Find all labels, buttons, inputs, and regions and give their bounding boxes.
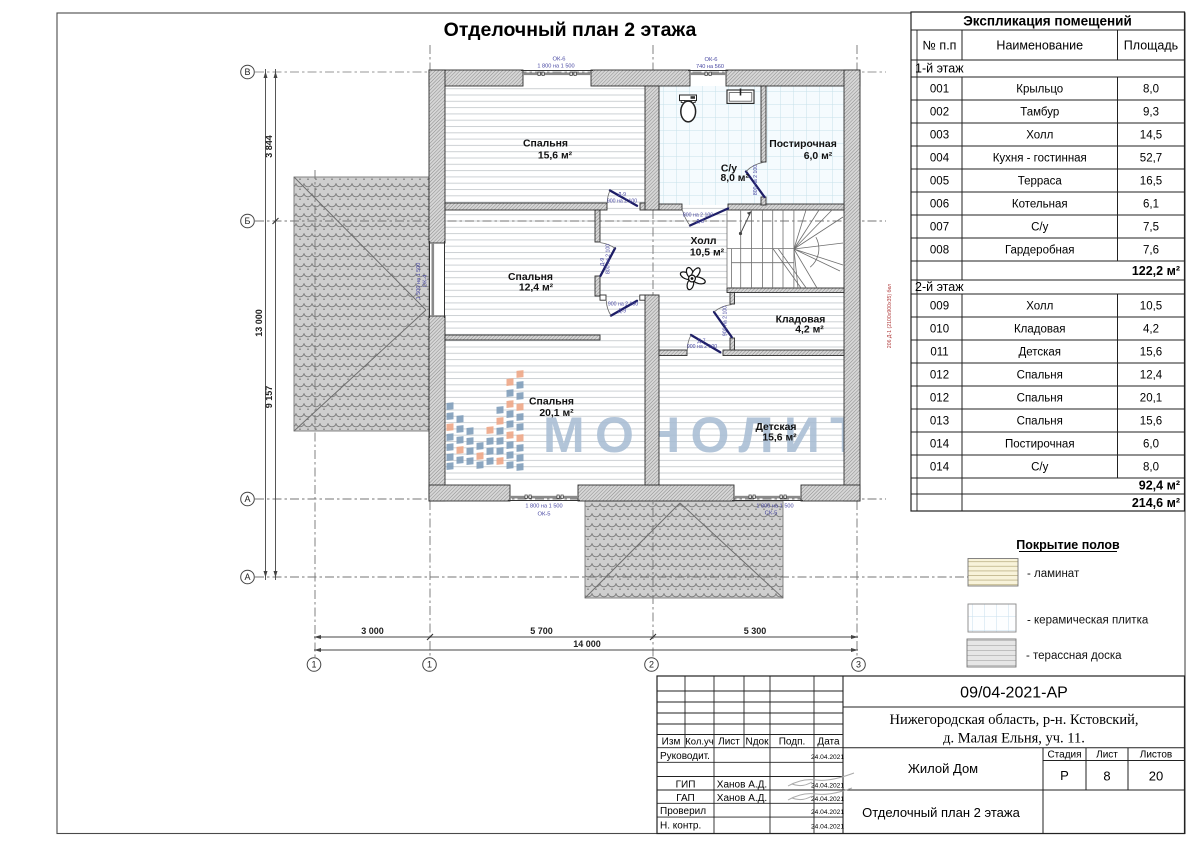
svg-text:А: А (244, 494, 250, 504)
svg-text:122,2 м²: 122,2 м² (1132, 264, 1180, 278)
svg-text:Спальня: Спальня (1017, 393, 1063, 405)
svg-text:24.04.2021: 24.04.2021 (811, 824, 844, 831)
svg-text:09/04-2021-АР: 09/04-2021-АР (960, 685, 1068, 702)
svg-text:Площадь: Площадь (1124, 39, 1178, 53)
svg-text:5 700: 5 700 (530, 626, 553, 636)
svg-text:900 на 2 100: 900 на 2 100 (607, 199, 637, 205)
svg-text:Кухня - гостинная: Кухня - гостинная (993, 153, 1087, 165)
svg-text:Подп.: Подп. (779, 736, 806, 747)
svg-text:14,5: 14,5 (1140, 130, 1162, 142)
svg-text:Кол.уч: Кол.уч (685, 736, 714, 747)
svg-text:3: 3 (856, 660, 861, 670)
svg-text:1 500 на 1 500: 1 500 на 1 500 (416, 263, 422, 300)
svg-text:010: 010 (930, 324, 949, 336)
svg-text:900 на 2 100: 900 на 2 100 (608, 302, 638, 308)
svg-text:ОК-4: ОК-4 (423, 275, 429, 287)
svg-text:ГАП: ГАП (676, 793, 695, 804)
svg-text:1 800 на 1 500: 1 800 на 1 500 (525, 504, 562, 510)
svg-text:004: 004 (930, 153, 950, 165)
svg-text:Экспликация помещений: Экспликация помещений (963, 14, 1132, 29)
svg-text:013: 013 (930, 416, 949, 428)
svg-text:007: 007 (930, 222, 949, 234)
svg-text:Спальня: Спальня (523, 139, 568, 150)
svg-text:8,0 м²: 8,0 м² (720, 173, 749, 184)
svg-text:Спальня: Спальня (1017, 370, 1063, 382)
svg-text:15,6 м²: 15,6 м² (538, 151, 573, 162)
svg-text:Постирочная: Постирочная (769, 139, 837, 150)
svg-text:МОНОЛИТ: МОНОЛИТ (543, 407, 871, 463)
svg-text:С/у: С/у (1031, 222, 1049, 234)
svg-text:8,0: 8,0 (1143, 84, 1159, 96)
svg-text:002: 002 (930, 107, 949, 119)
svg-text:8: 8 (1103, 769, 1110, 784)
svg-text:Изм: Изм (662, 736, 681, 747)
svg-text:Руководит.: Руководит. (660, 751, 710, 762)
svg-text:Дата: Дата (817, 736, 840, 747)
svg-text:011: 011 (930, 347, 948, 359)
svg-text:214,6 м²: 214,6 м² (1132, 496, 1180, 510)
svg-text:1 800 на 1 500: 1 800 на 1 500 (756, 504, 793, 510)
svg-text:Проверил: Проверил (660, 806, 706, 817)
svg-text:20,1 м²: 20,1 м² (539, 408, 574, 419)
svg-text:900 на 2 100: 900 на 2 100 (723, 306, 729, 336)
svg-text:4,2 м²: 4,2 м² (795, 325, 824, 336)
svg-text:6,0 м²: 6,0 м² (804, 151, 833, 162)
svg-text:Ханов А.Д.: Ханов А.Д. (717, 793, 767, 804)
svg-text:15,6: 15,6 (1140, 347, 1162, 359)
svg-text:014: 014 (930, 439, 950, 451)
svg-text:8,0: 8,0 (1143, 462, 1159, 474)
svg-text:1-й этаж: 1-й этаж (915, 62, 964, 76)
svg-text:Терраса: Терраса (1018, 176, 1063, 188)
svg-text:ГИП: ГИП (676, 780, 696, 791)
svg-text:14 000: 14 000 (573, 639, 601, 649)
svg-text:- терассная доска: - терассная доска (1026, 650, 1122, 662)
svg-text:006: 006 (930, 199, 949, 211)
svg-text:Жилой Дом: Жилой Дом (908, 761, 978, 776)
svg-text:Котельная: Котельная (1012, 199, 1068, 211)
svg-text:Лист: Лист (718, 736, 740, 747)
svg-text:003: 003 (930, 130, 949, 142)
svg-text:24.04.2021: 24.04.2021 (811, 809, 844, 816)
svg-text:Детская: Детская (756, 422, 797, 433)
svg-text:24.04.2021: 24.04.2021 (811, 783, 844, 790)
svg-text:Д-9: Д-9 (600, 258, 606, 267)
svg-text:Гардеробная: Гардеробная (1005, 245, 1075, 257)
svg-text:- керамическая плитка: - керамическая плитка (1027, 615, 1149, 627)
svg-text:№ п.п: № п.п (923, 39, 957, 53)
svg-text:800 на 2 100: 800 на 2 100 (606, 244, 612, 274)
svg-text:7,6: 7,6 (1143, 245, 1159, 257)
svg-text:ОК-6: ОК-6 (552, 57, 565, 63)
svg-text:6,1: 6,1 (1143, 199, 1159, 211)
svg-text:Холл: Холл (1026, 130, 1053, 142)
svg-text:13 000: 13 000 (254, 309, 264, 337)
svg-text:800 на 2 100: 800 на 2 100 (683, 213, 713, 219)
svg-text:52,7: 52,7 (1140, 153, 1162, 165)
svg-text:1: 1 (427, 660, 432, 670)
svg-text:5 300: 5 300 (744, 626, 767, 636)
svg-text:005: 005 (930, 176, 949, 188)
svg-text:Д-7: Д-7 (697, 339, 705, 345)
svg-text:800 на 2 100: 800 на 2 100 (753, 165, 759, 195)
svg-text:Отделочный план 2 этажа: Отделочный план 2 этажа (862, 805, 1020, 820)
svg-text:ОК-6: ОК-6 (704, 57, 717, 63)
svg-text:10,5: 10,5 (1140, 301, 1162, 313)
svg-text:1: 1 (311, 660, 316, 670)
svg-text:24.04.2021: 24.04.2021 (811, 796, 844, 803)
svg-text:20: 20 (1149, 769, 1163, 784)
svg-text:12,4: 12,4 (1140, 370, 1163, 382)
svg-text:4,2: 4,2 (1143, 324, 1159, 336)
svg-text:Постирочная: Постирочная (1005, 439, 1075, 451)
svg-text:Детская: Детская (1018, 347, 1061, 359)
svg-text:001: 001 (930, 84, 949, 96)
svg-text:Холл: Холл (1026, 301, 1053, 313)
svg-text:Р: Р (1060, 768, 1069, 783)
svg-text:2: 2 (649, 660, 654, 670)
svg-text:206 Д-1 (2100х900х35) бел: 206 Д-1 (2100х900х35) бел (887, 284, 893, 348)
svg-text:- ламинат: - ламинат (1027, 568, 1080, 580)
svg-text:СК-5: СК-5 (765, 511, 778, 517)
svg-text:Холл: Холл (690, 236, 716, 247)
svg-text:Нижегородская область, р-н. Кс: Нижегородская область, р-н. Кстовский, (890, 712, 1139, 728)
svg-text:15,6: 15,6 (1140, 416, 1162, 428)
svg-text:7,5: 7,5 (1143, 222, 1159, 234)
svg-text:92,4 м²: 92,4 м² (1139, 479, 1180, 493)
svg-text:С/у: С/у (1031, 462, 1049, 474)
svg-text:008: 008 (930, 245, 949, 257)
svg-text:Стадия: Стадия (1047, 749, 1081, 760)
svg-text:А: А (244, 572, 250, 582)
svg-text:740 на 560: 740 на 560 (696, 64, 724, 70)
svg-text:Отделочный план 2 этажа: Отделочный план 2 этажа (444, 19, 697, 41)
svg-text:12,4 м²: 12,4 м² (519, 283, 554, 294)
svg-text:009: 009 (930, 301, 949, 313)
svg-text:3 000: 3 000 (361, 626, 384, 636)
svg-text:д. Малая Ельня, уч. 11.: д. Малая Ельня, уч. 11. (943, 731, 1085, 747)
svg-text:Лист: Лист (1096, 749, 1118, 760)
svg-text:Тамбур: Тамбур (1020, 107, 1059, 119)
svg-text:Nдок: Nдок (746, 736, 770, 747)
svg-text:Ханов А.Д.: Ханов А.Д. (717, 780, 767, 791)
svg-text:Кладовая: Кладовая (1014, 324, 1066, 336)
svg-text:9 157: 9 157 (264, 386, 274, 409)
svg-text:Наименование: Наименование (996, 39, 1083, 53)
svg-text:Д-9: Д-9 (618, 309, 626, 315)
svg-text:012: 012 (930, 370, 949, 382)
svg-text:1 800 на 1 500: 1 800 на 1 500 (537, 64, 574, 70)
svg-text:2-й этаж: 2-й этаж (915, 280, 964, 294)
svg-text:Н. контр.: Н. контр. (660, 821, 701, 832)
svg-text:9,3: 9,3 (1143, 107, 1159, 119)
svg-text:012: 012 (930, 393, 949, 405)
svg-text:6,0: 6,0 (1143, 439, 1159, 451)
svg-text:Спальня: Спальня (529, 397, 574, 408)
svg-text:16,5: 16,5 (1140, 176, 1162, 188)
svg-text:10,5 м²: 10,5 м² (690, 248, 725, 259)
svg-text:20,1: 20,1 (1140, 393, 1162, 405)
svg-text:Покрытие полов: Покрытие полов (1016, 538, 1120, 552)
svg-text:Листов: Листов (1140, 749, 1173, 760)
svg-text:В: В (244, 67, 250, 77)
svg-text:Д-8: Д-8 (696, 219, 704, 225)
svg-text:15,6 м²: 15,6 м² (762, 432, 797, 443)
svg-text:Б: Б (245, 216, 251, 226)
svg-text:014: 014 (930, 462, 950, 474)
svg-text:ОК-5: ОК-5 (537, 512, 550, 518)
svg-text:24.04.2021: 24.04.2021 (811, 754, 844, 761)
svg-text:Д-9: Д-9 (618, 192, 626, 198)
svg-text:900 на 2 100: 900 на 2 100 (687, 344, 717, 350)
svg-text:3 844: 3 844 (264, 135, 274, 158)
svg-text:Спальня: Спальня (1017, 416, 1063, 428)
svg-text:Крыльцо: Крыльцо (1016, 84, 1063, 96)
